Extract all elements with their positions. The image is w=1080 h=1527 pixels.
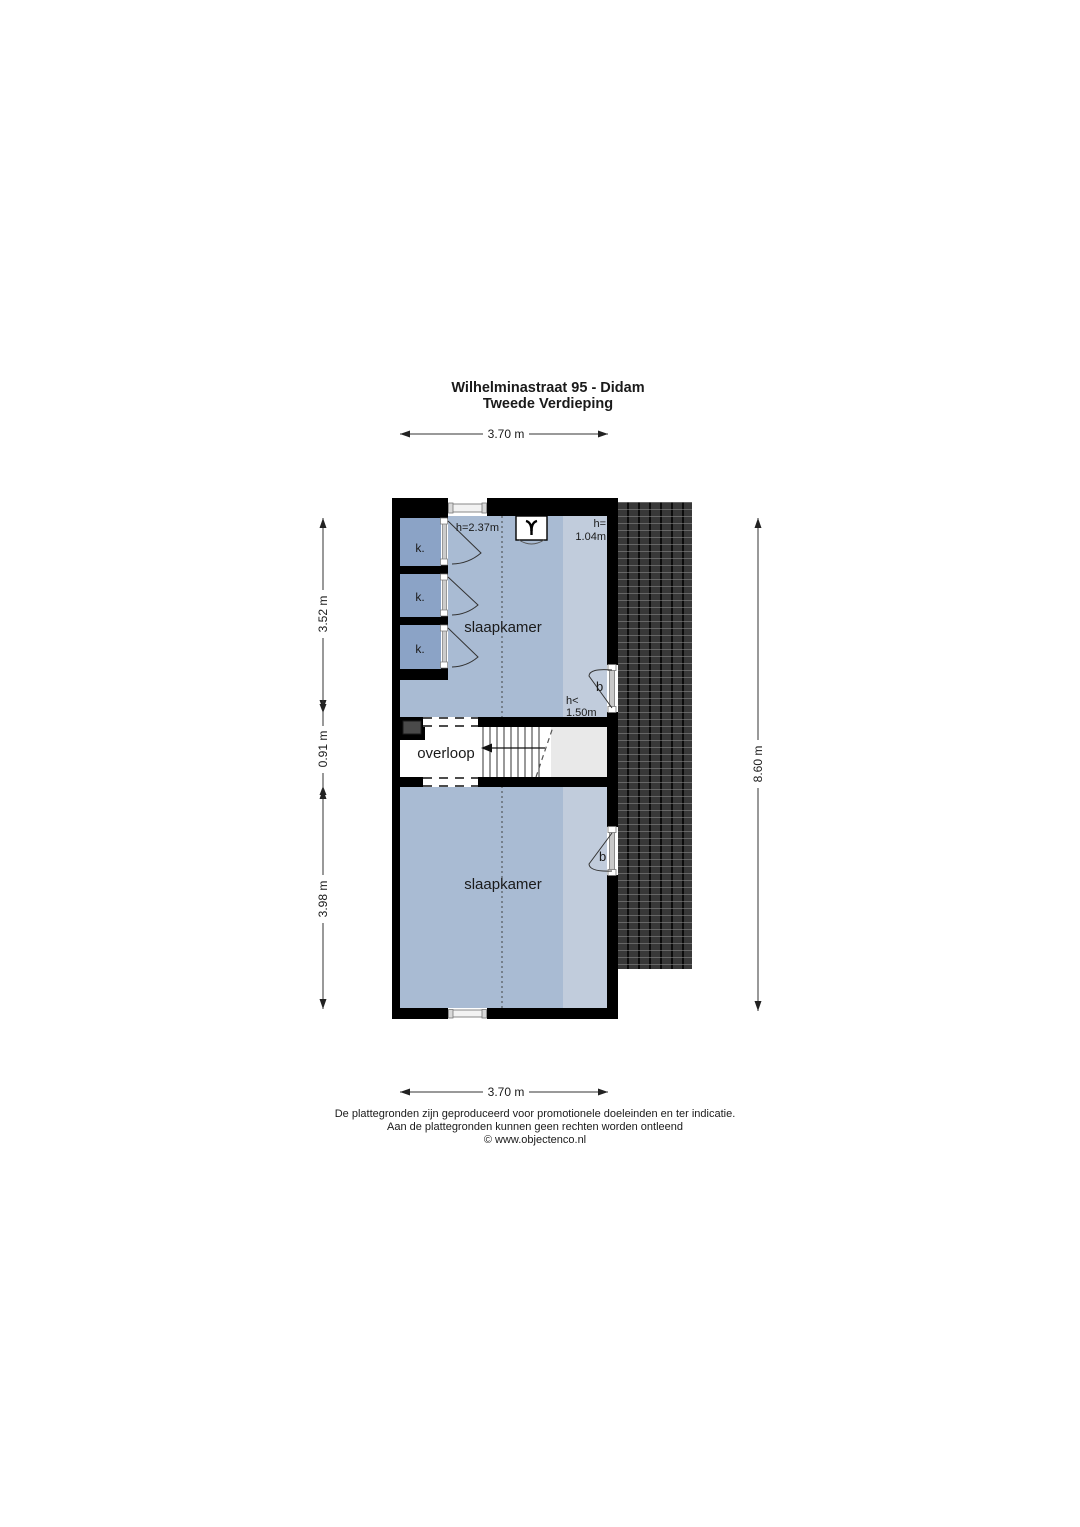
footer-disclaimer-line2: Aan de plattegronden kunnen geen rechten… (387, 1121, 683, 1133)
room-label-landing: overloop (417, 745, 475, 762)
closet-label: k. (415, 642, 424, 656)
low-height-value: 1.50m (566, 707, 597, 719)
dimension-left-middle: 0.91 m (315, 696, 331, 803)
dimension-bottom: 3.70 m (400, 1084, 608, 1099)
page-title: Wilhelminastraat 95 - Didam (451, 380, 644, 396)
room-label-bedroom-bottom: slaapkamer (464, 876, 542, 893)
closet-door-leaf (443, 630, 447, 664)
ceiling-height-label: h=2.37m (456, 522, 499, 534)
svg-text:0.91 m: 0.91 m (316, 731, 330, 768)
stair-upper-zone (551, 717, 607, 787)
window-top (448, 498, 487, 516)
dimension-right: 8.60 m (750, 518, 766, 1011)
floorplan-drawing: Wilhelminastraat 95 - Didam Tweede Verdi… (0, 0, 1080, 1527)
dimension-left-top: 3.52 m (315, 518, 331, 710)
door-leaf (610, 669, 615, 708)
door-label: b (599, 849, 606, 864)
door-label: b (596, 679, 603, 694)
closet-label: k. (415, 590, 424, 604)
closet-door-leaf (443, 579, 447, 612)
page-subtitle: Tweede Verdieping (483, 396, 613, 412)
svg-text:3.98 m: 3.98 m (316, 881, 330, 918)
svg-text:3.70 m: 3.70 m (488, 427, 525, 441)
floorplan-canvas: Wilhelminastraat 95 - Didam Tweede Verdi… (0, 0, 1080, 1527)
room-label-bedroom-top: slaapkamer (464, 619, 542, 636)
svg-text:3.70 m: 3.70 m (488, 1085, 525, 1099)
footer-disclaimer-line1: De plattegronden zijn geproduceerd voor … (335, 1108, 736, 1120)
knee-wall-height-value: 1.04m (575, 531, 606, 543)
low-height-prefix: h< (566, 695, 579, 707)
footer-copyright: © www.objectenco.nl (484, 1134, 586, 1146)
closet-door-leaf (443, 523, 447, 561)
svg-text:3.52 m: 3.52 m (316, 596, 330, 633)
mechanical-ventilation-icon (516, 516, 547, 544)
dimension-left-bottom: 3.98 m (315, 789, 331, 1009)
window-bottom (448, 1008, 487, 1019)
svg-text:8.60 m: 8.60 m (751, 746, 765, 783)
duct (403, 721, 421, 734)
door-leaf (610, 832, 615, 871)
knee-wall-height-prefix: h= (593, 518, 606, 530)
closet-label: k. (415, 541, 424, 555)
dimension-top: 3.70 m (400, 426, 608, 441)
